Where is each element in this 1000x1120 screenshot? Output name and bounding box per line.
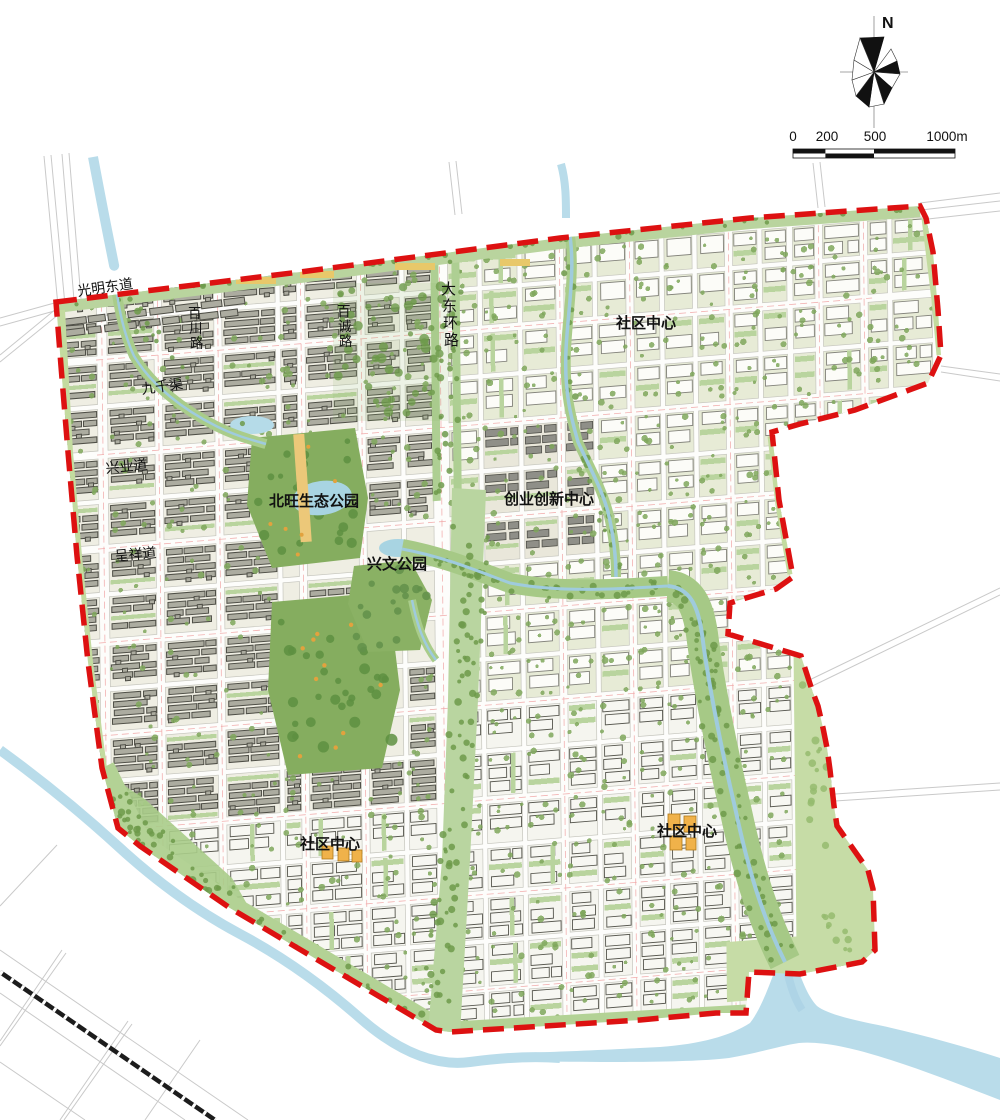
svg-text:百: 百 [188, 306, 202, 321]
svg-text:社区中心: 社区中心 [656, 822, 717, 840]
svg-text:兴文公园: 兴文公园 [367, 555, 427, 573]
svg-text:社区中心: 社区中心 [299, 835, 360, 853]
svg-text:创业创新中心: 创业创新中心 [503, 490, 594, 508]
svg-text:东: 东 [442, 298, 457, 315]
svg-text:北旺生态公园: 北旺生态公园 [269, 492, 359, 510]
svg-text:诚: 诚 [338, 319, 352, 334]
svg-text:社区中心: 社区中心 [615, 314, 676, 332]
svg-text:N: N [882, 15, 894, 32]
svg-text:500: 500 [864, 129, 887, 144]
svg-text:大: 大 [441, 281, 456, 298]
svg-text:200: 200 [816, 129, 839, 144]
svg-text:路: 路 [339, 334, 353, 349]
svg-text:环: 环 [443, 315, 458, 332]
svg-text:川: 川 [189, 321, 203, 336]
svg-text:0: 0 [789, 129, 797, 144]
svg-text:1000m: 1000m [926, 129, 967, 144]
svg-text:路: 路 [444, 332, 459, 349]
svg-text:百: 百 [337, 304, 351, 319]
svg-text:路: 路 [190, 336, 204, 351]
